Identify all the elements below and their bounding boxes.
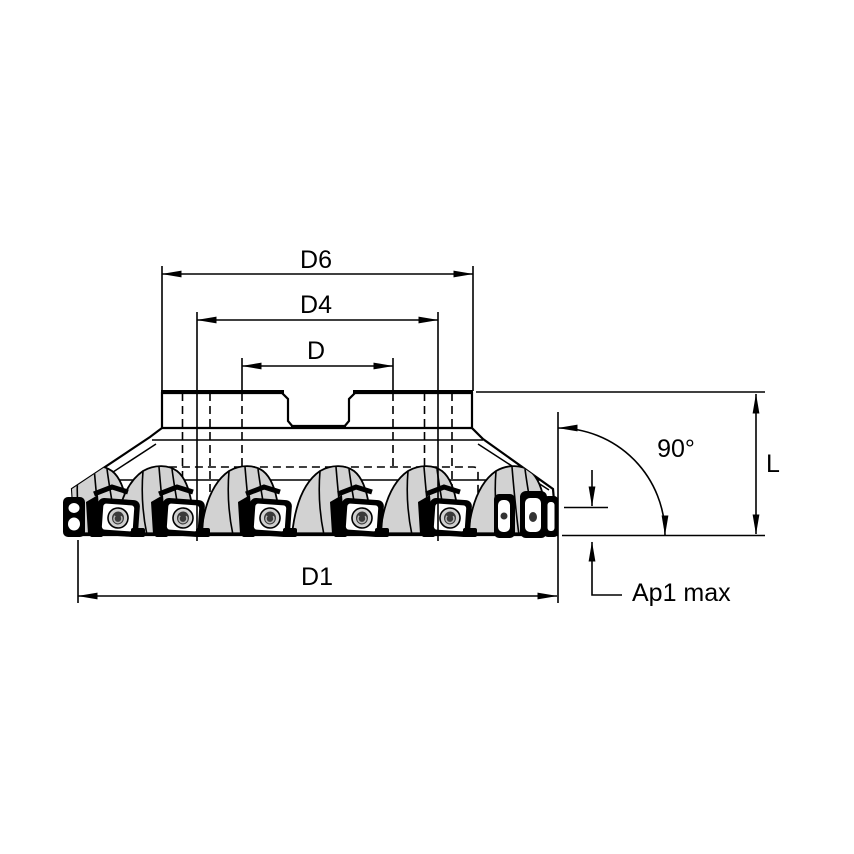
depth-arrow-up-leader [592, 542, 622, 595]
dimension-depth: Ap1 max [564, 470, 731, 607]
l-label: L [766, 450, 780, 478]
d4-label: D4 [300, 291, 332, 319]
edge-insert-right-3 [544, 496, 558, 537]
edge-insert-right-2 [520, 491, 547, 538]
angle-label: 90° [657, 435, 695, 463]
dimension-d: D [242, 337, 393, 391]
d6-label: D6 [300, 246, 332, 274]
angle-arc [558, 428, 665, 535]
edge-insert-left [63, 497, 85, 537]
edge-insert-right-1 [494, 494, 515, 538]
d-label: D [307, 337, 325, 365]
drawing-canvas: D6 D4 D D1 L 90° Ap1 max [0, 0, 854, 854]
dimension-angle: 90° [558, 428, 695, 535]
d1-label: D1 [301, 563, 333, 591]
depth-label: Ap1 max [632, 579, 731, 607]
milling-cutter-diagram: D6 D4 D D1 L 90° Ap1 max [0, 0, 854, 854]
